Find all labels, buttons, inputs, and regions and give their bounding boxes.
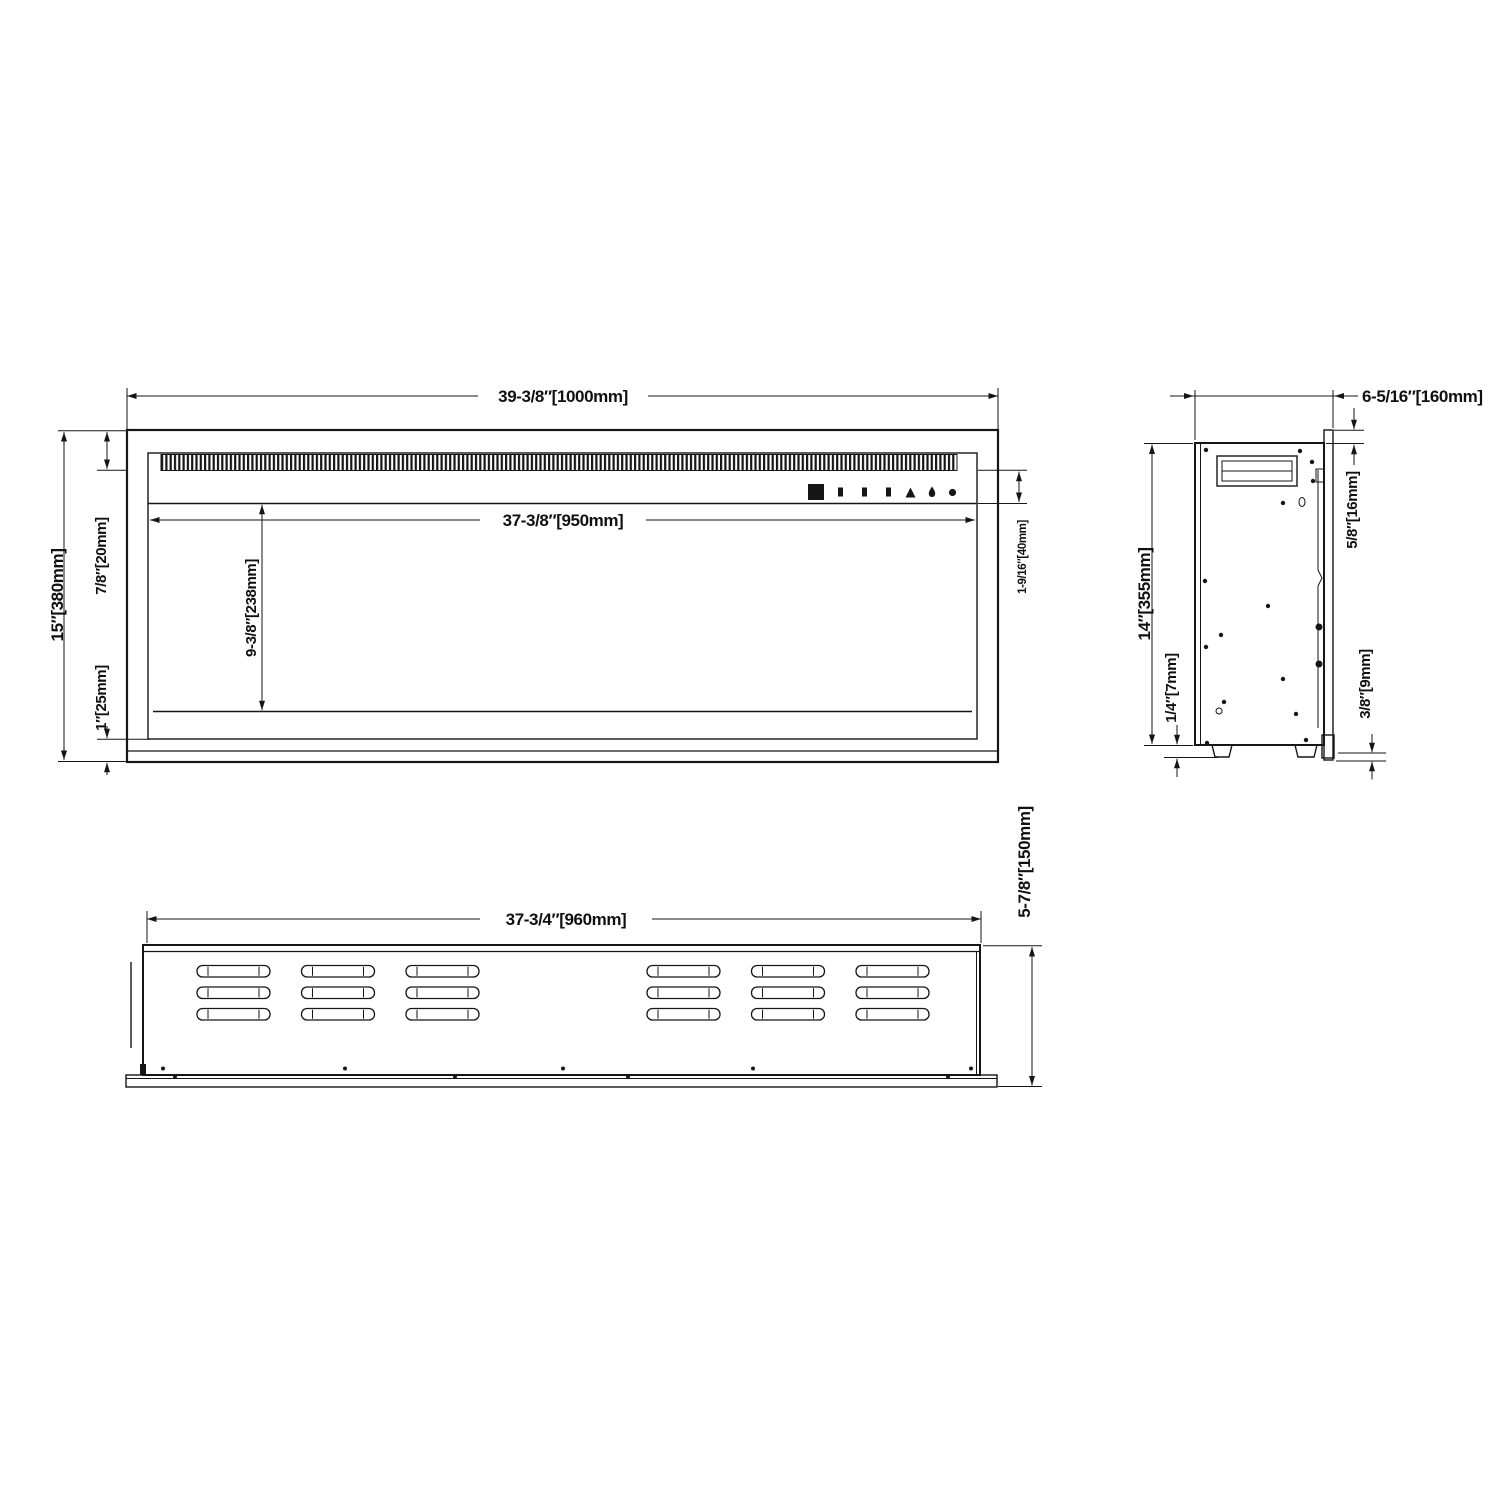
screw-dot [751, 1067, 755, 1071]
screw-dot [1204, 645, 1208, 649]
screw-dot [1204, 448, 1208, 452]
flange-inner-edge [1318, 470, 1322, 728]
screw-dot [969, 1067, 973, 1071]
mounting-clip [1316, 469, 1324, 482]
dim-side-depth: 6-5/16″[160mm] [1170, 387, 1483, 440]
screw-dot [343, 1067, 347, 1071]
screw-dot [1311, 479, 1315, 483]
front-control-strip-label: 1-9/16″[40mm] [1017, 520, 1029, 594]
dim-front-vent-band: 7/8″[20mm] [93, 432, 127, 595]
screw-dots [161, 1067, 973, 1079]
screw-dot [1298, 449, 1302, 453]
drop-button-icon [929, 487, 935, 498]
side-flange-bottom-label: 3/8″[9mm] [1357, 649, 1374, 719]
power-button-icon [949, 489, 956, 496]
side-body-height-label: 14″[355mm] [1135, 548, 1154, 641]
screw-dot [453, 1075, 457, 1079]
front-opening-width-label: 37-3/8″[950mm] [503, 511, 624, 530]
screw-hole [1216, 708, 1222, 714]
flange-bolt [1316, 661, 1323, 668]
vent-louvers [197, 966, 929, 1021]
dim-front-opening-width: 37-3/8″[950mm] [150, 511, 975, 530]
bottom-view: 37-3/4″[960mm] 5-7/8″[150mm] [126, 806, 1042, 1087]
bottom-body-width-label: 37-3/4″[960mm] [506, 910, 627, 929]
front-bottom-frame-label: 1″[25mm] [93, 665, 110, 731]
front-flange [1324, 430, 1333, 760]
front-overall-width-label: 39-3/8″[1000mm] [498, 387, 628, 406]
side-depth-label: 6-5/16″[160mm] [1362, 387, 1483, 406]
dim-front-bottom-frame: 1″[25mm] [93, 665, 150, 775]
screw-dot [1304, 738, 1308, 742]
side-flange-top-label: 5/8″[16mm] [1344, 471, 1361, 549]
flange-bolt [1316, 624, 1323, 631]
control-button-icon [886, 488, 891, 497]
side-body [1195, 430, 1334, 760]
side-view: 6-5/16″[160mm] 5/8″[16mm] 14″[355mm] 1/4… [1135, 387, 1483, 780]
screw-dot [946, 1075, 950, 1079]
screw-dots [1203, 448, 1315, 745]
side-foot-height-label: 1/4″[7mm] [1163, 653, 1180, 723]
screw-dot [1310, 460, 1314, 464]
screw-dot [173, 1075, 177, 1079]
dim-bottom-body-width: 37-3/4″[960mm] [147, 910, 981, 943]
cable-hole [1299, 498, 1305, 507]
screw-dot [1281, 501, 1285, 505]
front-overall-height-label: 15″[380mm] [48, 549, 67, 642]
control-button-icon [862, 488, 867, 497]
front-view: 39-3/8″[1000mm] 37-3/8″[950mm] 15″[380mm… [48, 387, 1029, 775]
control-button-icon [838, 488, 843, 497]
bottom-depth-label: 5-7/8″[150mm] [1015, 806, 1034, 918]
foot [1212, 745, 1232, 757]
dim-front-overall-height: 15″[380mm] [48, 431, 126, 762]
fireplace-three-view-drawing: 39-3/8″[1000mm] 37-3/8″[950mm] 15″[380mm… [0, 0, 1500, 1500]
dim-bottom-depth: 5-7/8″[150mm] [983, 806, 1042, 1086]
screw-dot [1205, 741, 1209, 745]
screw-dot [161, 1067, 165, 1071]
bottom-body [126, 945, 997, 1087]
top-vent-grille [161, 455, 957, 471]
screw-dot [1222, 700, 1226, 704]
screw-dot [1219, 633, 1223, 637]
drawing-canvas: 39-3/8″[1000mm] 37-3/8″[950mm] 15″[380mm… [0, 0, 1500, 1500]
screw-dot [626, 1075, 630, 1079]
dim-side-flange-top: 5/8″[16mm] [1326, 408, 1364, 549]
screw-dot [1203, 579, 1207, 583]
base-plate [126, 1075, 997, 1087]
screw-dot [561, 1067, 565, 1071]
dim-front-opening-height: 9-3/8″[238mm] [243, 505, 262, 711]
flame-button-icon [906, 488, 916, 498]
dim-side-foot-height: 1/4″[7mm] [1163, 653, 1218, 777]
control-panel [808, 484, 956, 500]
front-vent-band-label: 7/8″[20mm] [93, 517, 110, 595]
front-opening-height-label: 9-3/8″[238mm] [243, 559, 260, 657]
foot [1295, 745, 1317, 757]
screw-dot [1281, 677, 1285, 681]
screw-dot [1294, 712, 1298, 716]
screw-dot [1266, 604, 1270, 608]
dim-side-flange-bottom: 3/8″[9mm] [1336, 649, 1386, 780]
display-window-icon [808, 484, 824, 500]
dim-front-overall-width: 39-3/8″[1000mm] [127, 387, 998, 429]
dim-front-control-strip: 1-9/16″[40mm] [978, 470, 1029, 594]
